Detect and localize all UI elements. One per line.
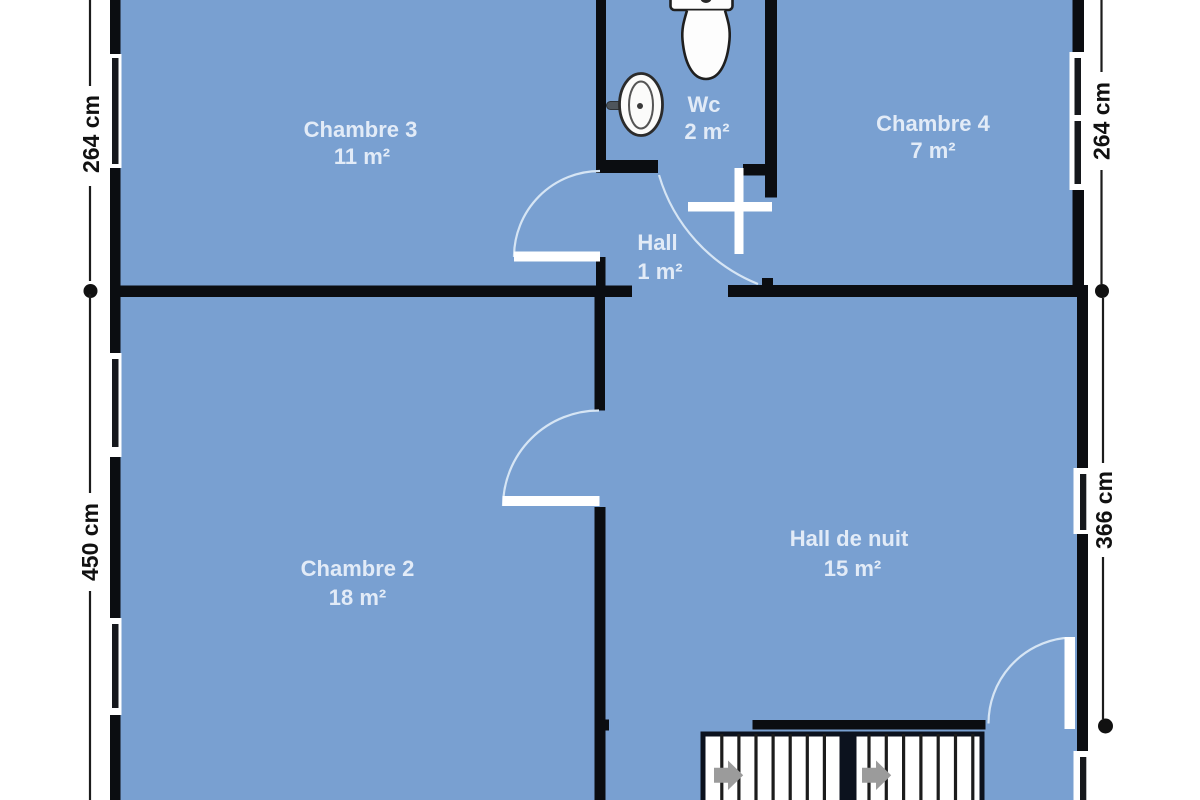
svg-text:11 m²: 11 m² (334, 144, 390, 169)
svg-text:2 m²: 2 m² (684, 119, 729, 144)
svg-text:264 cm: 264 cm (78, 95, 104, 173)
svg-text:Hall: Hall (637, 230, 677, 255)
svg-text:Chambre 3: Chambre 3 (304, 117, 418, 142)
svg-text:366 cm: 366 cm (1091, 471, 1117, 549)
svg-text:7 m²: 7 m² (910, 138, 955, 163)
svg-text:18 m²: 18 m² (329, 585, 386, 610)
svg-text:Wc: Wc (688, 92, 721, 117)
svg-text:450 cm: 450 cm (77, 503, 103, 581)
svg-text:1 m²: 1 m² (637, 259, 682, 284)
svg-text:Chambre 2: Chambre 2 (301, 556, 415, 581)
svg-text:Hall de nuit: Hall de nuit (790, 526, 909, 551)
svg-text:Chambre 4: Chambre 4 (876, 111, 990, 136)
svg-text:264 cm: 264 cm (1089, 82, 1115, 160)
svg-text:15 m²: 15 m² (824, 556, 881, 581)
